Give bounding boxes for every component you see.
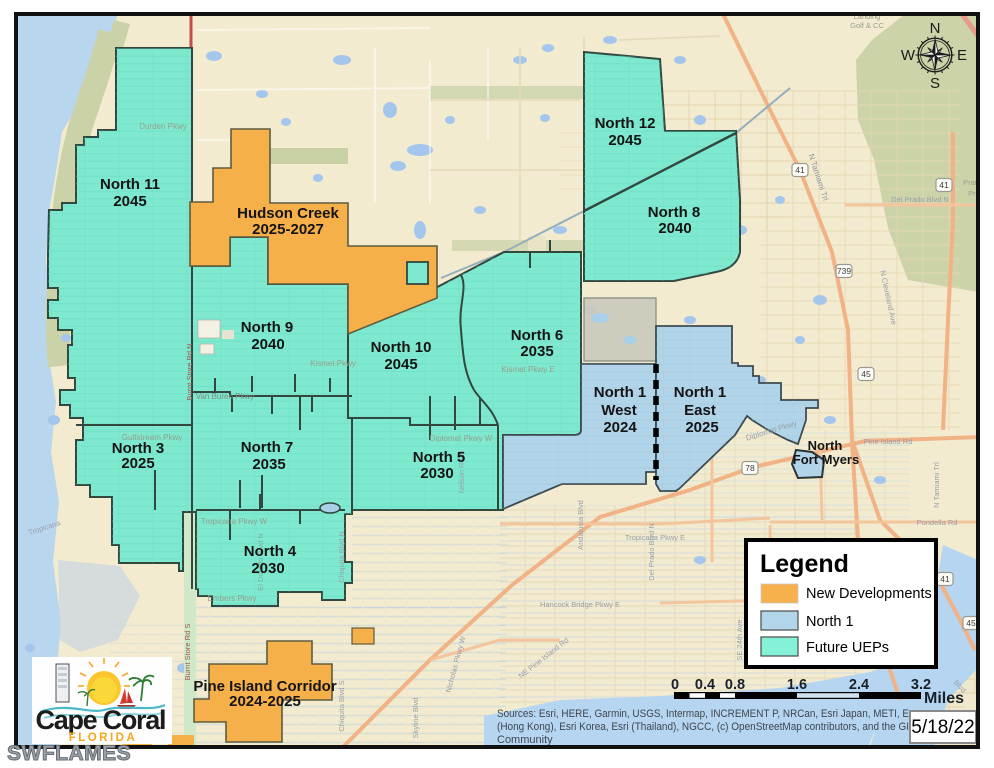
svg-text:Tropicana Pkwy W: Tropicana Pkwy W [201, 517, 268, 526]
svg-text:Sources: Esri, HERE, Garmin, U: Sources: Esri, HERE, Garmin, USGS, Inter… [497, 708, 909, 720]
svg-text:N: N [930, 20, 941, 37]
svg-text:North 1: North 1 [806, 614, 854, 630]
svg-text:Kismet Pkwy E: Kismet Pkwy E [501, 365, 554, 374]
svg-text:Golf & CC: Golf & CC [850, 21, 884, 30]
svg-text:North 10: North 10 [371, 339, 432, 356]
svg-text:W: W [901, 47, 916, 64]
svg-text:2025-2027: 2025-2027 [252, 221, 324, 238]
svg-text:North 9: North 9 [241, 319, 294, 336]
svg-text:North 4: North 4 [244, 543, 297, 560]
svg-text:New Developments: New Developments [806, 586, 932, 602]
svg-text:Chiquita Blvd S: Chiquita Blvd S [337, 680, 346, 731]
svg-text:2030: 2030 [420, 465, 453, 482]
svg-text:Pine Island Rd: Pine Island Rd [864, 437, 913, 446]
svg-text:North 6: North 6 [511, 327, 564, 344]
svg-text:North 7: North 7 [241, 439, 294, 456]
svg-text:Hudson Creek: Hudson Creek [237, 205, 339, 222]
svg-text:Fort Myers: Fort Myers [793, 452, 859, 467]
svg-text:45: 45 [966, 618, 976, 628]
svg-text:Embers Pkwy: Embers Pkwy [208, 594, 257, 603]
svg-text:2040: 2040 [658, 220, 691, 237]
svg-text:Skyline Blvd: Skyline Blvd [411, 698, 420, 739]
svg-text:2.4: 2.4 [849, 677, 869, 693]
svg-text:2035: 2035 [520, 343, 553, 360]
svg-text:2024-2025: 2024-2025 [229, 693, 301, 710]
svg-text:S: S [930, 75, 940, 92]
svg-text:5/18/22: 5/18/22 [911, 717, 974, 738]
svg-text:Del Prado Blvd N: Del Prado Blvd N [891, 195, 949, 204]
svg-text:Andalusia Blvd: Andalusia Blvd [576, 500, 585, 550]
svg-text:Burnt Store Rd S: Burnt Store Rd S [183, 624, 192, 681]
svg-text:2045: 2045 [113, 193, 146, 210]
svg-text:(Hong Kong), Esri Korea, Esri: (Hong Kong), Esri Korea, Esri (Thailand)… [497, 721, 909, 733]
svg-text:2025: 2025 [121, 455, 154, 472]
svg-text:Kismet Pkwy: Kismet Pkwy [310, 359, 356, 368]
svg-text:Hancock Bridge Pkwy E: Hancock Bridge Pkwy E [540, 600, 620, 609]
svg-text:Van Buren Pkwy: Van Buren Pkwy [196, 392, 255, 401]
svg-text:North 12: North 12 [595, 115, 656, 132]
svg-text:North 5: North 5 [413, 449, 466, 466]
svg-text:N Tamiami Trl: N Tamiami Trl [932, 462, 941, 508]
svg-text:41: 41 [940, 574, 950, 584]
svg-text:78: 78 [745, 463, 755, 473]
svg-text:E: E [957, 47, 967, 64]
svg-text:41: 41 [795, 165, 805, 175]
svg-text:2045: 2045 [608, 132, 641, 149]
svg-text:Miles: Miles [924, 690, 964, 707]
svg-text:Burnt Store Rd N: Burnt Store Rd N [185, 343, 194, 400]
svg-text:Future UEPs: Future UEPs [806, 640, 889, 656]
svg-text:Pondella Rd: Pondella Rd [917, 518, 958, 527]
svg-text:Durden Pkwy: Durden Pkwy [139, 122, 187, 131]
svg-text:45: 45 [861, 369, 871, 379]
svg-text:2030: 2030 [251, 560, 284, 577]
svg-text:East: East [684, 402, 716, 419]
svg-text:1.6: 1.6 [787, 677, 807, 693]
svg-text:0.4: 0.4 [695, 677, 715, 693]
svg-text:Cape Coral: Cape Coral [36, 705, 167, 735]
svg-text:2040: 2040 [251, 336, 284, 353]
svg-text:739: 739 [837, 266, 851, 276]
svg-text:2035: 2035 [252, 456, 285, 473]
svg-text:Diplomat Pkwy W: Diplomat Pkwy W [430, 434, 493, 443]
svg-text:2024: 2024 [603, 419, 637, 436]
svg-text:Chiquita Blvd N: Chiquita Blvd N [337, 531, 346, 583]
svg-text:West: West [601, 402, 637, 419]
svg-text:North: North [808, 438, 843, 453]
svg-text:Del Prado Blvd N: Del Prado Blvd N [647, 523, 656, 581]
svg-text:2025: 2025 [685, 419, 718, 436]
svg-text:North 1: North 1 [594, 384, 647, 401]
svg-text:SWFLAMES: SWFLAMES [7, 742, 131, 765]
svg-text:Community: Community [497, 734, 553, 746]
svg-text:North 11: North 11 [100, 176, 160, 193]
svg-text:41: 41 [939, 180, 949, 190]
svg-text:North 1: North 1 [674, 384, 727, 401]
svg-text:North 8: North 8 [648, 204, 701, 221]
svg-text:Legend: Legend [760, 550, 849, 578]
svg-text:0.8: 0.8 [725, 677, 745, 693]
svg-text:0: 0 [671, 677, 679, 693]
svg-text:SE 24th Ave: SE 24th Ave [735, 619, 744, 660]
svg-text:2045: 2045 [384, 356, 417, 373]
